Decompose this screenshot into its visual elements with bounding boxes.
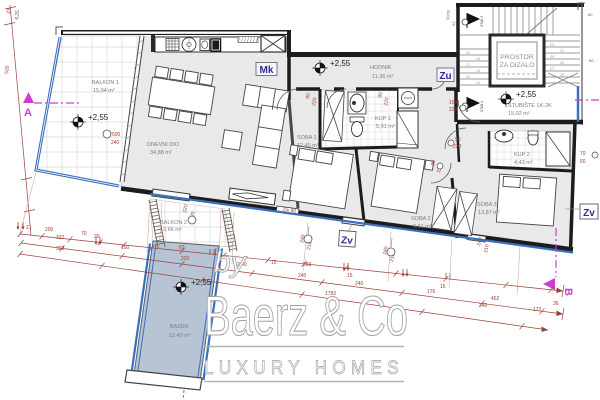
svg-text:15: 15 [466,75,470,79]
svg-text:15: 15 [271,260,277,266]
svg-text:24: 24 [560,49,564,53]
svg-text:BAZEN: BAZEN [170,324,188,330]
svg-text:520: 520 [4,65,11,74]
svg-text:4,43 m²: 4,43 m² [514,160,533,166]
svg-text:200: 200 [45,227,54,233]
svg-text:Zv: Zv [583,208,595,219]
svg-text:STAN 4: STAN 4 [480,101,484,112]
svg-text:15,94 m²: 15,94 m² [93,88,115,94]
svg-text:Baerz & Co: Baerz & Co [204,284,408,347]
svg-text:63: 63 [179,245,185,251]
svg-text:220: 220 [449,107,458,113]
svg-text:11,36 m²: 11,36 m² [372,74,393,80]
svg-text:13,87 m²: 13,87 m² [478,210,500,216]
svg-text:220: 220 [453,144,462,150]
svg-text:100: 100 [449,100,458,106]
svg-text:50/90: 50/90 [445,9,451,20]
svg-text:17: 17 [466,63,470,67]
svg-text:ZA DIZALO: ZA DIZALO [500,62,535,69]
svg-text:240: 240 [479,303,488,309]
svg-text:70: 70 [580,151,586,157]
svg-text:34,88 m²: 34,88 m² [150,150,172,156]
svg-text:SOBA 2: SOBA 2 [411,216,431,222]
svg-text:150: 150 [121,245,130,251]
svg-text:HODNIK: HODNIK [370,65,392,71]
svg-text:+2,55: +2,55 [330,59,351,68]
svg-text:240: 240 [111,140,120,146]
svg-text:21: 21 [26,225,32,231]
svg-text:3,66 m²: 3,66 m² [163,227,182,233]
svg-text:12,45 m²: 12,45 m² [297,143,319,149]
svg-text:STAN 3: STAN 3 [480,16,484,27]
svg-text:DNEVNI DIO: DNEVNI DIO [147,142,180,148]
svg-text:5,91 m²: 5,91 m² [376,124,395,130]
svg-text:26: 26 [560,61,564,65]
svg-text:220: 220 [181,256,190,262]
svg-text:15: 15 [440,284,446,290]
svg-text:452: 452 [491,296,500,302]
svg-text:+2,55: +2,55 [88,113,109,122]
svg-text:9,61 m²: 9,61 m² [413,224,432,230]
svg-text:14: 14 [476,81,480,85]
svg-text:B: B [562,288,574,296]
svg-text:LUXURY HOMES: LUXURY HOMES [204,358,404,379]
svg-text:176: 176 [427,289,436,295]
svg-text:25: 25 [550,55,554,59]
svg-text:KUP 1: KUP 1 [375,116,391,122]
svg-text:27: 27 [550,67,554,71]
svg-text:16: 16 [476,69,480,73]
svg-text:60: 60 [580,159,586,165]
svg-text:70: 70 [81,231,87,237]
svg-text:STUBIŠTE 1K-2K: STUBIŠTE 1K-2K [508,102,552,109]
svg-text:283: 283 [303,262,312,268]
svg-text:322: 322 [56,246,65,252]
svg-text:30: 30 [94,234,100,240]
svg-text:60: 60 [589,58,594,63]
svg-text:240: 240 [298,273,307,279]
svg-text:by: by [214,246,248,279]
svg-text:12,43 m²: 12,43 m² [169,333,191,339]
svg-text:BALKON 2: BALKON 2 [160,220,187,226]
svg-text:Zu: Zu [439,71,451,82]
svg-text:23: 23 [6,8,13,14]
svg-text:A: A [24,107,32,119]
svg-text:+2,55: +2,55 [516,90,537,99]
svg-text:SOBA 1: SOBA 1 [297,135,317,141]
svg-text:172: 172 [533,307,542,313]
svg-text:28: 28 [560,73,564,77]
svg-text:15: 15 [347,273,353,279]
svg-text:90: 90 [455,137,461,143]
svg-text:PROSTOR: PROSTOR [500,54,534,61]
svg-text:322: 322 [56,235,65,241]
svg-text:19: 19 [466,51,470,55]
svg-text:18: 18 [476,57,480,61]
svg-text:60: 60 [588,12,593,17]
svg-text:Zv: Zv [341,235,354,247]
svg-text:4,25: 4,25 [14,10,21,21]
svg-text:15,02 m²: 15,02 m² [508,111,530,117]
svg-text:BALKON 1: BALKON 1 [92,80,119,86]
svg-text:KUP 2: KUP 2 [514,152,530,158]
svg-text:SOBA 3: SOBA 3 [477,202,497,208]
svg-text:500: 500 [112,132,121,138]
svg-text:23: 23 [550,43,554,47]
svg-text:36: 36 [553,301,559,307]
svg-text:Mk: Mk [260,65,274,76]
